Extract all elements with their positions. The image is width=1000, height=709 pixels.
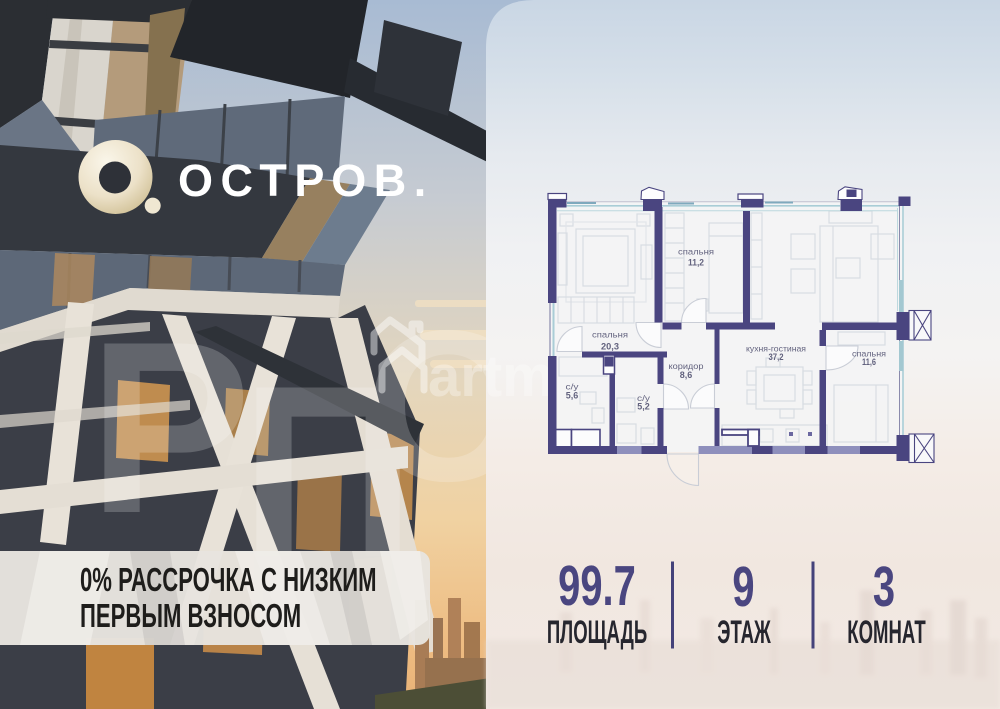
svg-text:спальня: спальня [592,331,628,340]
svg-text:ЭТАЖ: ЭТАЖ [717,614,771,651]
svg-text:КОМНАТ: КОМНАТ [847,614,925,651]
svg-text:ПЕРВЫМ ВЗНОСОМ: ПЕРВЫМ ВЗНОСОМ [80,598,301,634]
svg-text:Р: Р [88,290,251,564]
svg-text:artm: artm [428,344,554,409]
svg-text:3: 3 [873,555,895,619]
svg-text:99.7: 99.7 [558,554,636,618]
svg-text:37,2: 37,2 [769,352,784,362]
svg-text:ПЛОЩАДЬ: ПЛОЩАДЬ [547,614,647,651]
svg-text:11,6: 11,6 [862,357,876,367]
svg-text:0% РАССРОЧКА С НИЗКИМ: 0% РАССРОЧКА С НИЗКИМ [80,562,377,598]
svg-text:спальня: спальня [678,248,714,257]
svg-text:9: 9 [732,555,754,619]
svg-text:20,3: 20,3 [601,342,619,352]
svg-text:5,6: 5,6 [566,391,579,401]
svg-text:8,6: 8,6 [680,370,693,380]
svg-text:ОСТРОВ.: ОСТРОВ. [178,155,434,206]
svg-text:11,2: 11,2 [688,258,704,268]
svg-text:5,2: 5,2 [637,402,650,412]
